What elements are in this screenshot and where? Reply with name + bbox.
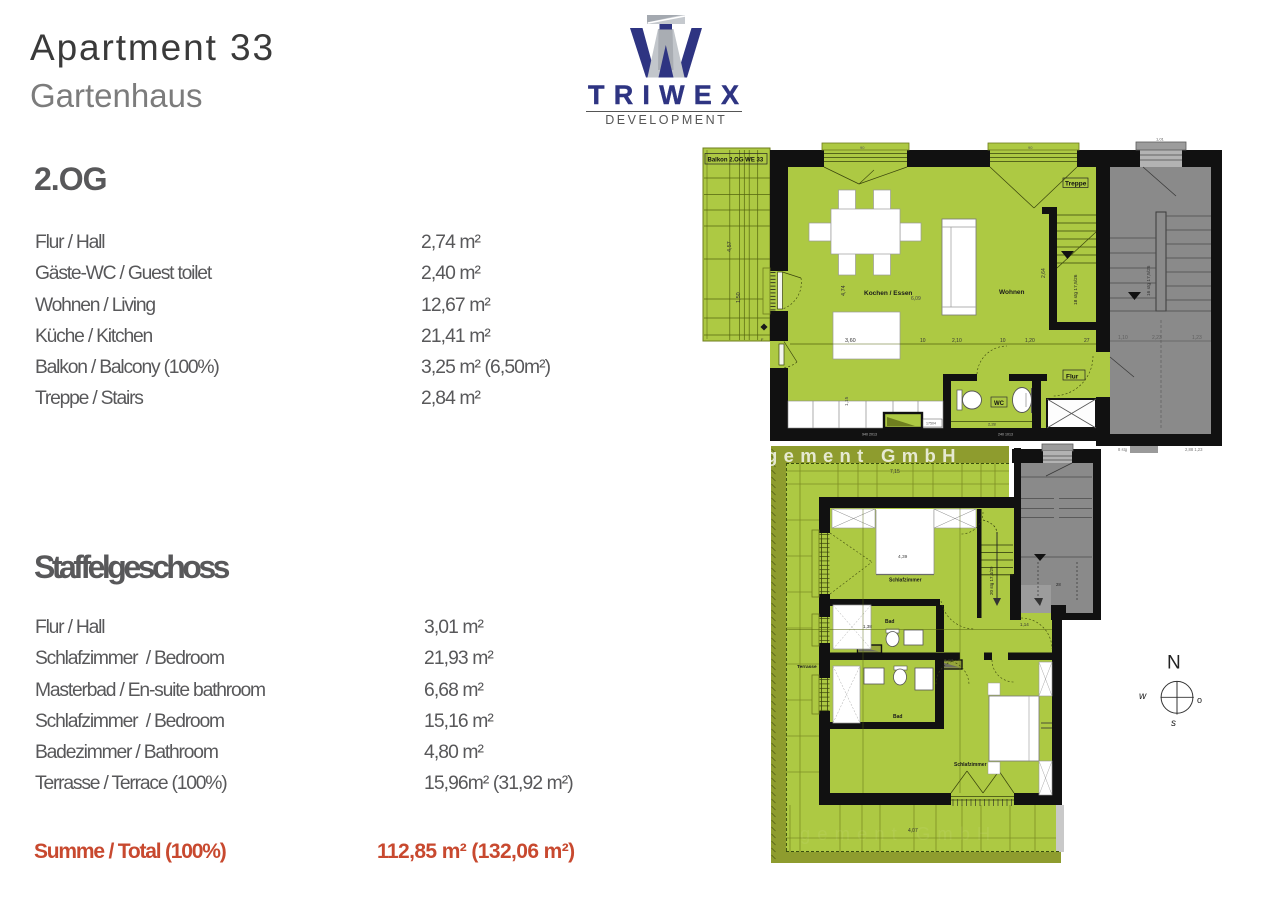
- svg-text:2,28: 2,28: [988, 422, 997, 427]
- svg-text:16 stg 17,5/26: 16 stg 17,5/26: [1146, 265, 1152, 296]
- svg-text:2,88 1,23: 2,88 1,23: [1185, 447, 1203, 452]
- svg-text:4,39: 4,39: [898, 554, 908, 560]
- svg-text:1,10: 1,10: [1118, 335, 1128, 341]
- svg-text:Treppe: Treppe: [1065, 181, 1087, 188]
- svg-text:8 stg: 8 stg: [1118, 447, 1128, 452]
- svg-text:7,15: 7,15: [890, 469, 900, 475]
- svg-text:Kochen / Essen: Kochen / Essen: [864, 290, 912, 297]
- svg-text:2,23: 2,23: [1152, 335, 1162, 341]
- svg-text:3,60: 3,60: [845, 338, 856, 344]
- svg-text:10: 10: [920, 338, 926, 344]
- svg-text:90: 90: [860, 145, 865, 150]
- svg-text:s: s: [1171, 718, 1176, 729]
- svg-text:1,50: 1,50: [736, 292, 742, 303]
- svg-text:1,01: 1,01: [1156, 137, 1165, 142]
- svg-text:WC: WC: [994, 401, 1005, 407]
- svg-text:90: 90: [1028, 145, 1033, 150]
- svg-text:Bad: Bad: [885, 619, 894, 625]
- svg-text:Balkon 2.OG WE 33: Balkon 2.OG WE 33: [708, 157, 764, 163]
- svg-text:2,64: 2,64: [1041, 268, 1047, 278]
- svg-text:6,07: 6,07: [944, 658, 954, 664]
- svg-text:10: 10: [1000, 338, 1006, 344]
- svg-text:Schlafzimmer: Schlafzimmer: [954, 762, 987, 768]
- svg-text:Bad: Bad: [893, 714, 902, 720]
- svg-text:2,10: 2,10: [952, 338, 962, 344]
- svg-text:4,57: 4,57: [727, 241, 733, 252]
- svg-text:Wohnen: Wohnen: [999, 289, 1025, 296]
- svg-text:18 stg 17,5/26: 18 stg 17,5/26: [1073, 274, 1079, 305]
- svg-text:1,23: 1,23: [1192, 335, 1202, 341]
- svg-text:240 1013: 240 1013: [998, 433, 1013, 437]
- svg-text:1,20: 1,20: [1025, 338, 1035, 344]
- svg-text:Schlafzimmer: Schlafzimmer: [889, 578, 922, 584]
- svg-text:1,15: 1,15: [844, 396, 850, 406]
- svg-text:6,09: 6,09: [911, 296, 921, 302]
- svg-text:20 stg 17,4/29: 20 stg 17,4/29: [989, 566, 994, 595]
- svg-text:N: N: [1167, 653, 1181, 674]
- svg-text:gement GmbH: gement GmbH: [800, 823, 997, 844]
- svg-text:940 2013: 940 2013: [862, 433, 877, 437]
- svg-text:w: w: [1139, 691, 1147, 702]
- svg-text:1,14: 1,14: [1020, 622, 1029, 627]
- svg-text:28: 28: [1056, 582, 1061, 587]
- svg-text:Flur: Flur: [1066, 374, 1079, 381]
- svg-text:17504: 17504: [926, 422, 936, 426]
- svg-text:1,38: 1,38: [863, 624, 872, 629]
- svg-text:Terrasse: Terrasse: [797, 664, 817, 670]
- svg-text:27: 27: [1084, 338, 1090, 344]
- svg-text:o: o: [1197, 695, 1202, 705]
- svg-text:4,74: 4,74: [841, 285, 847, 296]
- svg-text:gement GmbH: gement GmbH: [766, 445, 962, 466]
